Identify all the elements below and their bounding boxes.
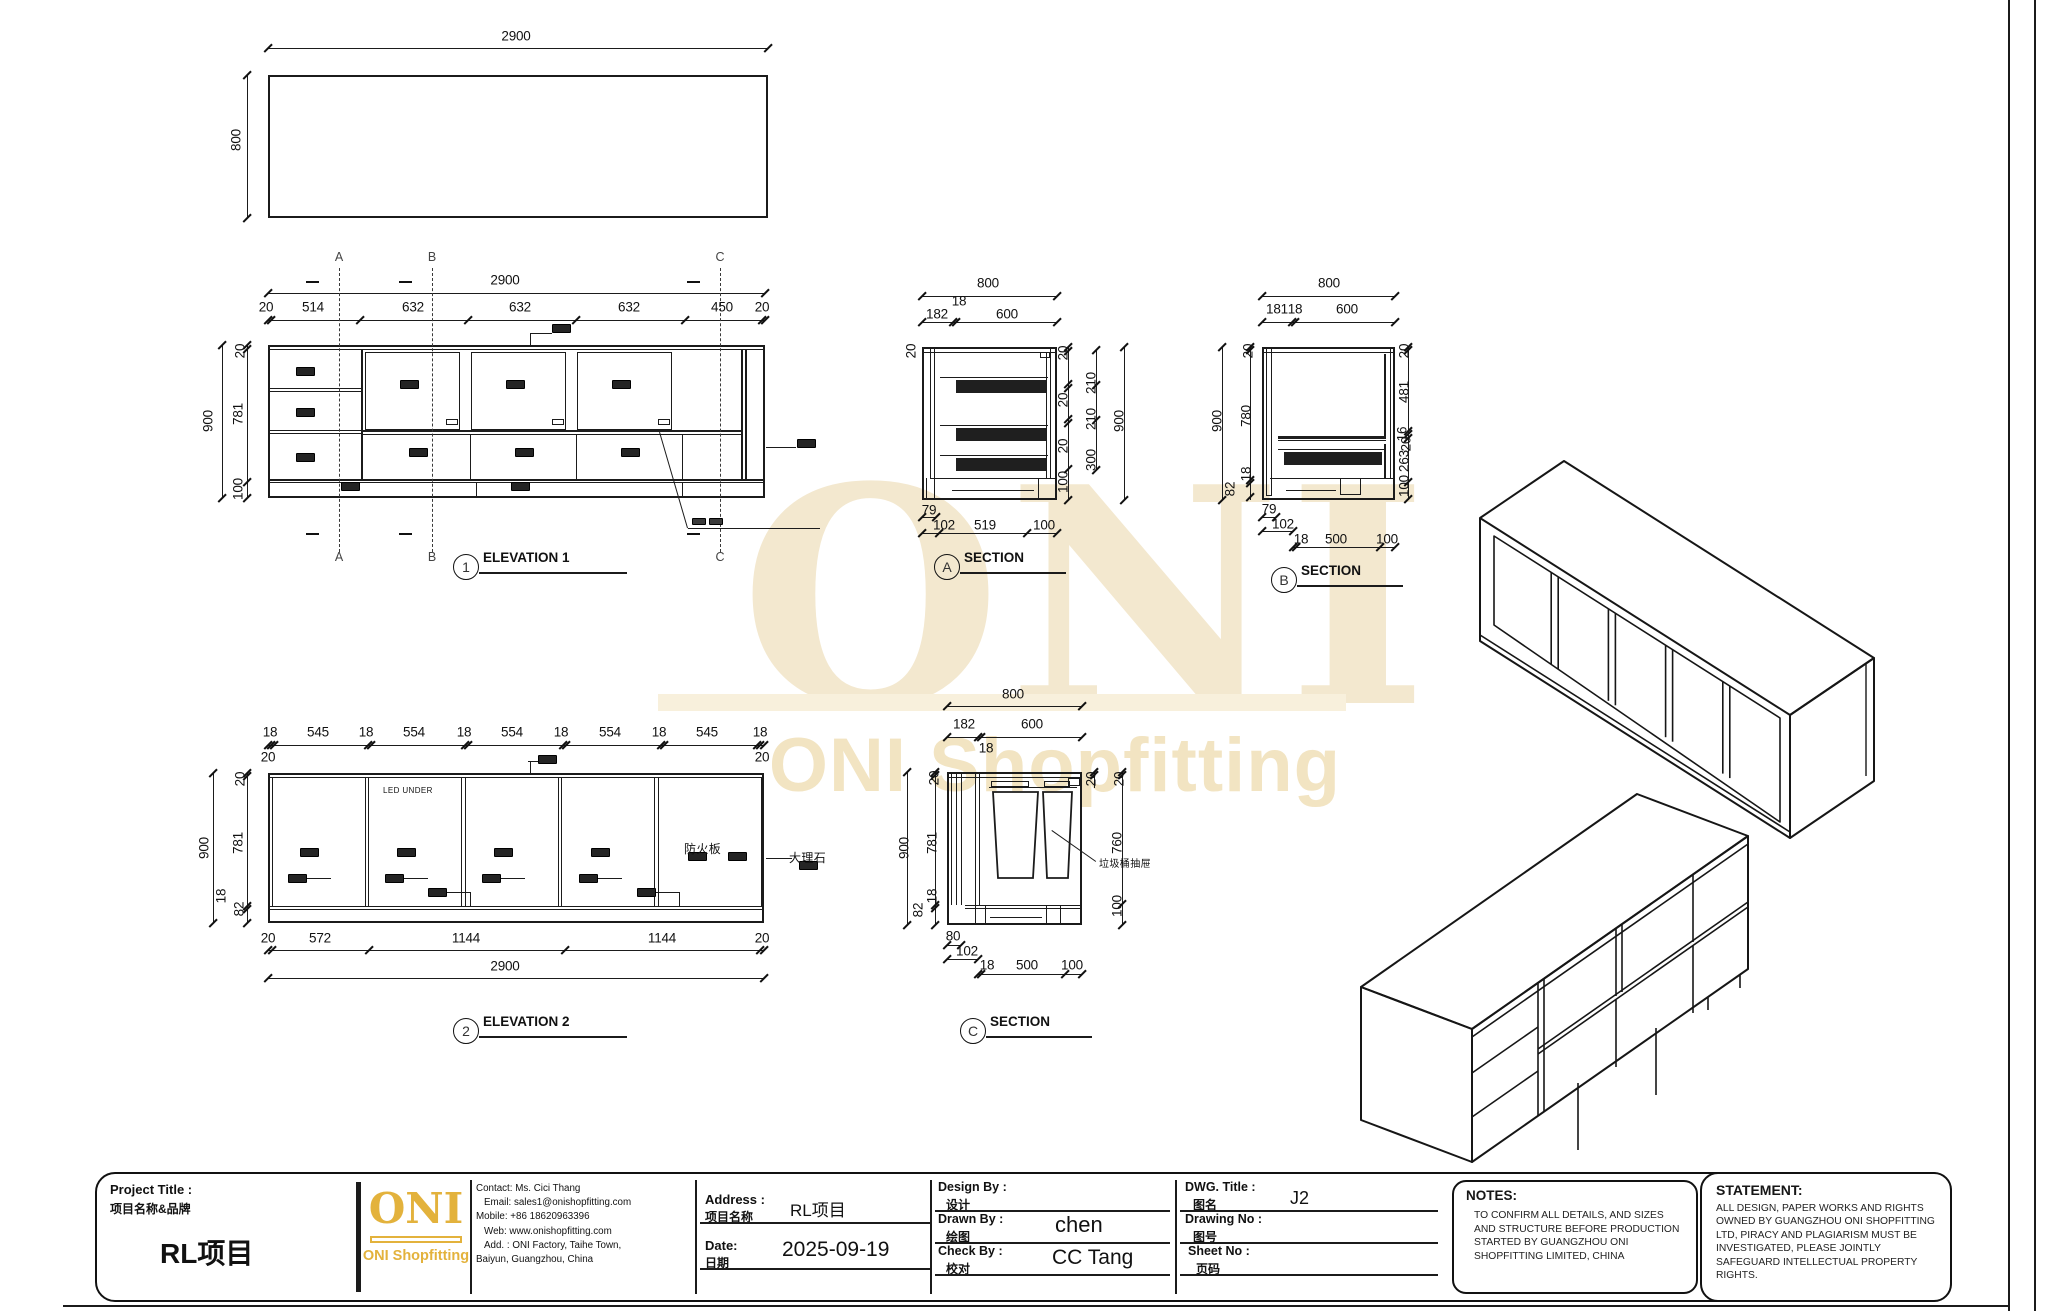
dim-label: 632: [618, 300, 640, 315]
drawing-line: [447, 892, 471, 893]
drawing-line: [1266, 347, 1267, 478]
sheet-border-right-outer: [2034, 0, 2036, 1311]
drawing-line: [922, 322, 1057, 323]
dim-tick: [1246, 493, 1255, 502]
drawing-line: [222, 345, 223, 498]
titleblock-divider-3: [930, 1180, 932, 1294]
drawing-line: [479, 1036, 627, 1038]
dim-label: 20: [259, 300, 274, 315]
dim-label: 632: [402, 300, 424, 315]
drawing-box: [268, 75, 768, 218]
dim-label: 20: [261, 750, 276, 765]
dim-label: 20: [904, 344, 919, 359]
dim-label: 18: [359, 725, 374, 740]
callout-title: SECTION: [990, 1014, 1050, 1029]
drawing-line: [307, 878, 331, 879]
dim-label: 600: [1021, 717, 1043, 732]
annotation-text: LED UNDER: [383, 786, 433, 795]
dim-label: 545: [307, 725, 329, 740]
dim-label: 800: [977, 276, 999, 291]
titleblock-thick-bar: [356, 1182, 361, 1292]
callout-title: SECTION: [964, 550, 1024, 565]
dim-label: 600: [996, 307, 1018, 322]
material-tag: [494, 848, 513, 857]
drawing-line: [940, 425, 1048, 426]
material-tag: [515, 448, 534, 457]
drawing-line: [952, 490, 1034, 491]
sheet-border-bottom: [63, 1305, 2010, 1307]
drawing-line: [598, 878, 622, 879]
dim-label: 900: [197, 837, 212, 859]
dim-label: 18: [652, 725, 667, 740]
dim-label: 900: [897, 837, 912, 859]
dim-label: 79: [922, 503, 937, 518]
section-cut-dash: [399, 281, 412, 283]
drawing-box: [658, 419, 670, 425]
drawing-line: [1262, 296, 1395, 297]
dim-label: 2900: [490, 273, 519, 288]
drawing-line: [268, 777, 764, 778]
dim-label: 20: [1397, 344, 1412, 359]
drawing-line: [1384, 354, 1386, 436]
drawing-line: [1340, 494, 1361, 495]
material-tag: [428, 888, 447, 897]
titleblock-divider-1: [470, 1180, 472, 1294]
drawing-line: [1271, 347, 1272, 478]
drawing-line: [479, 572, 627, 574]
dim-label: 632: [509, 300, 531, 315]
drawing-line: [1266, 478, 1267, 496]
drawing-line: [268, 391, 361, 392]
dim-label: 18: [925, 889, 940, 904]
dim-label: 18: [263, 725, 278, 740]
section-mark-letter: C: [715, 550, 724, 564]
drawing-line: [465, 777, 466, 906]
material-tag: [288, 874, 307, 883]
drawing-line: [1278, 449, 1386, 450]
material-tag: [506, 380, 525, 389]
dim-label: 2900: [490, 959, 519, 974]
drawing-line: [268, 433, 361, 434]
material-tag: [612, 380, 631, 389]
drawing-line: [268, 320, 765, 321]
dim-tick: [209, 919, 218, 928]
dim-tick: [243, 214, 252, 223]
dim-label: 554: [599, 725, 621, 740]
drawing-line: [272, 777, 273, 906]
dim-label: 18: [1294, 532, 1309, 547]
annotation-text: 大理石: [789, 849, 826, 866]
drawing-no-label: Drawing No :: [1185, 1212, 1262, 1226]
drawn-by-label: Drawn By :: [938, 1212, 1003, 1226]
drawing-line: [947, 959, 978, 960]
dim-tick: [903, 921, 912, 930]
drawing-line: [922, 296, 1057, 297]
material-tag: [538, 755, 557, 764]
drawing-line: [986, 1036, 1092, 1038]
dim-tick: [761, 316, 770, 325]
dim-label: 519: [974, 518, 996, 533]
dim-tick: [764, 44, 773, 53]
drawing-line: [934, 478, 935, 500]
drawing-line: [558, 777, 559, 906]
dim-label: 20: [1112, 772, 1127, 787]
drawing-line: [1050, 347, 1051, 478]
drawing-line: [561, 777, 562, 906]
dim-label: 18: [952, 294, 967, 309]
isometric-view-bottom-unit: [1338, 778, 1778, 1178]
dim-label: 20: [755, 750, 770, 765]
drawing-line: [1384, 444, 1386, 478]
dim-label: 82: [911, 903, 926, 918]
drawing-line: [476, 482, 477, 498]
date-label: Date:: [705, 1238, 738, 1253]
address-value: RL项目: [790, 1196, 846, 1221]
drawing-line: [960, 572, 1066, 574]
dim-label: 760: [1110, 832, 1125, 854]
notes-body: TO CONFIRM ALL DETAILS, AND SIZES AND ST…: [1454, 1203, 1696, 1263]
drawing-line: [741, 349, 743, 479]
drawing-line: [761, 777, 762, 906]
contact-line: Add. : ONI Factory, Taihe Town,: [476, 1239, 696, 1253]
dim-tick: [761, 289, 770, 298]
dim-label: 100: [1056, 471, 1071, 493]
dim-label: 800: [229, 129, 244, 151]
drawing-panel-fill: [1278, 436, 1386, 439]
drawing-line: [361, 349, 363, 479]
drawing-line: [1278, 440, 1386, 441]
sheet-no-underline: [1180, 1274, 1438, 1276]
drawing-line: [654, 777, 655, 906]
dim-label: 20: [1241, 344, 1256, 359]
dim-label: 18: [457, 725, 472, 740]
material-tag: [591, 848, 610, 857]
dim-label: 100: [1061, 958, 1083, 973]
dim-label: 514: [302, 300, 324, 315]
material-tag: [400, 380, 419, 389]
oni-logo: ONI: [366, 1184, 466, 1233]
drawing-line: [688, 528, 820, 529]
drawing-line: [365, 777, 366, 906]
dim-label: 781: [231, 403, 246, 425]
section-mark-letter: B: [428, 250, 436, 264]
dim-label: 900: [201, 410, 216, 432]
dim-label: 20: [1084, 772, 1099, 787]
dim-tick: [760, 974, 769, 983]
drawing-line: [682, 434, 683, 479]
dim-label: 481: [1397, 381, 1412, 403]
dim-label: 554: [403, 725, 425, 740]
material-tag: [296, 453, 315, 462]
dim-label: 572: [309, 931, 331, 946]
drawing-line: [922, 533, 1057, 534]
dim-label: 780: [1239, 405, 1254, 427]
drawing-line: [1270, 478, 1395, 479]
drawing-line: [268, 950, 764, 951]
section-mark-letter: A: [335, 550, 343, 564]
drawing-line: [530, 333, 531, 345]
dim-label: 181: [1266, 302, 1288, 317]
dim-label: 800: [1002, 687, 1024, 702]
dim-label: 1144: [452, 931, 480, 946]
oni-logo-bar: [370, 1236, 462, 1243]
dim-label: 79: [1262, 502, 1277, 517]
dim-label: 102: [1272, 517, 1294, 532]
dim-label: 781: [925, 832, 940, 854]
contact-line: Baiyun, Guangzhou, China: [476, 1253, 696, 1267]
callout-title: ELEVATION 1: [483, 550, 570, 565]
dim-label: 18: [753, 725, 768, 740]
material-tag: [728, 852, 747, 861]
dim-tick: [243, 919, 252, 928]
section-mark-letter: A: [335, 250, 343, 264]
dim-label: 102: [956, 944, 978, 959]
dim-label: 20: [233, 344, 248, 359]
dim-label: 18: [980, 958, 995, 973]
oni-logo-sub: ONI Shopfitting: [360, 1248, 472, 1264]
titleblock-divider-4: [1175, 1180, 1177, 1294]
dim-tick: [1064, 496, 1073, 505]
drawing-line: [1266, 495, 1272, 496]
drawing-line: [934, 347, 935, 478]
project-title-label-cn: 项目名称&品牌: [110, 1200, 191, 1217]
drawing-panel-fill: [956, 428, 1046, 441]
drawing-box: [552, 419, 564, 425]
drawing-line: [268, 978, 764, 979]
drawing-line: [1038, 498, 1057, 499]
check-by-label: Check By :: [938, 1244, 1003, 1258]
dim-label: 18: [554, 725, 569, 740]
address-underline: [700, 1222, 930, 1224]
section-cut-dash: [306, 281, 319, 283]
dim-label: 800: [1318, 276, 1340, 291]
callout-circle: 1: [453, 554, 479, 580]
drawing-line: [268, 388, 361, 389]
drawing-line: [501, 878, 525, 879]
callout-circle: 2: [453, 1018, 479, 1044]
drawing-line: [940, 377, 1048, 378]
drawing-line: [368, 777, 369, 906]
section-mark-letter: B: [428, 550, 436, 564]
drawing-line: [361, 434, 741, 435]
material-tag: [579, 874, 598, 883]
callout-title: ELEVATION 2: [483, 1014, 570, 1029]
dim-label: 182: [953, 717, 975, 732]
drawing-line: [1340, 478, 1341, 495]
contact-line: Contact: Ms. Cici Thang: [476, 1182, 696, 1196]
section-cut-line: [432, 268, 433, 552]
drawing-line: [658, 777, 659, 906]
section-mark-letter: C: [715, 250, 724, 264]
drawing-line: [530, 333, 552, 334]
drawing-line: [947, 706, 1082, 707]
drawing-line: [1360, 478, 1361, 495]
dim-label: 900: [1112, 410, 1127, 432]
drawing-line: [268, 479, 765, 481]
drawing-line: [461, 777, 462, 906]
drawing-panel-fill: [361, 430, 741, 432]
dim-tick: [1218, 496, 1227, 505]
material-tag: [397, 848, 416, 857]
dim-label: 210: [1084, 408, 1099, 430]
material-code-tag: [692, 518, 706, 525]
dim-label: 600: [1336, 302, 1358, 317]
drawing-line: [1297, 585, 1403, 587]
material-tag: [300, 848, 319, 857]
drawing-line: [926, 478, 927, 500]
dim-tick: [1053, 318, 1062, 327]
sheet-no-label: Sheet No :: [1188, 1244, 1250, 1258]
dim-label: 100: [231, 478, 246, 500]
section-cut-line: [339, 268, 340, 552]
check-underline: [935, 1274, 1170, 1276]
address-label: Address :: [705, 1192, 765, 1207]
drawing-line: [978, 974, 1082, 975]
project-title-value: RL项目: [160, 1232, 253, 1272]
drawing-line: [766, 447, 796, 448]
material-tag: [621, 448, 640, 457]
design-by-label: Design By :: [938, 1180, 1007, 1194]
notes-heading: NOTES:: [1454, 1182, 1696, 1203]
dim-label: 20: [1056, 439, 1071, 454]
drawn-by-value: chen: [1055, 1212, 1103, 1238]
dim-label: 781: [231, 832, 246, 854]
dim-label: 102: [933, 518, 955, 533]
drawing-line: [268, 48, 768, 49]
material-tag: [482, 874, 501, 883]
drawing-line: [268, 293, 765, 294]
drawing-line: [470, 892, 471, 906]
statement-box: STATEMENT: ALL DESIGN, PAPER WORKS AND R…: [1700, 1172, 1952, 1302]
material-code-tag: [709, 518, 723, 525]
dim-label: 20: [755, 300, 770, 315]
dim-tick: [1120, 496, 1129, 505]
section-cut-dash: [399, 533, 412, 535]
dim-label: 18: [214, 889, 229, 904]
drawing-line: [940, 455, 1048, 456]
dim-label: 1144: [648, 931, 676, 946]
material-tag: [296, 367, 315, 376]
dim-label: 100: [1376, 532, 1398, 547]
titleblock-divider-2: [695, 1180, 697, 1294]
date-underline: [700, 1268, 930, 1270]
drawing-line: [1390, 347, 1391, 478]
dim-label: 82: [1223, 482, 1238, 497]
trash-bins: [947, 770, 1087, 930]
contact-block: Contact: Ms. Cici Thang Email: sales1@on…: [476, 1182, 696, 1267]
dwg-title-label: DWG. Title :: [1185, 1180, 1256, 1194]
drawing-panel-fill: [1284, 452, 1382, 465]
annotation-text: 防火板: [684, 840, 721, 857]
date-value: 2025-09-19: [782, 1238, 889, 1262]
section-cut-dash: [687, 281, 700, 283]
drawing-line: [1286, 490, 1336, 491]
drawing-line: [656, 892, 680, 893]
dim-label: 554: [501, 725, 523, 740]
dim-tick: [1391, 292, 1400, 301]
dim-label: 900: [1210, 410, 1225, 432]
material-tag: [797, 439, 816, 448]
dim-tick: [1053, 292, 1062, 301]
drawing-line: [1271, 478, 1272, 496]
contact-line: Email: sales1@onishopfitting.com: [476, 1196, 696, 1210]
material-tag: [296, 408, 315, 417]
drawing-line: [1046, 352, 1047, 478]
drawing-box: [446, 419, 458, 425]
dim-label: 182: [926, 307, 948, 322]
dim-label: 2900: [501, 29, 530, 44]
drawing-line: [247, 345, 248, 498]
dim-label: 100: [1397, 475, 1412, 497]
dim-tick: [1118, 921, 1127, 930]
dim-label: 100: [1033, 518, 1055, 533]
dim-tick: [1078, 702, 1087, 711]
drawing-sheet: ONI ONI Shopfitting 29008002900205146326…: [0, 0, 2048, 1311]
drawing-line: [268, 909, 764, 910]
drawing-line: [404, 878, 428, 879]
drawing-line: [1262, 352, 1395, 353]
annotation-text: 垃圾桶抽屉: [1099, 855, 1151, 870]
material-tag: [385, 874, 404, 883]
dim-label: 18: [979, 741, 994, 756]
dim-tick: [1078, 733, 1087, 742]
drawing-line: [947, 737, 1082, 738]
material-tag: [637, 888, 656, 897]
dim-label: 20: [261, 931, 276, 946]
notes-box: NOTES: TO CONFIRM ALL DETAILS, AND SIZES…: [1452, 1180, 1698, 1294]
dim-label: 80: [946, 929, 961, 944]
material-tag: [552, 324, 571, 333]
statement-body: ALL DESIGN, PAPER WORKS AND RIGHTS OWNED…: [1702, 1198, 1950, 1282]
section-cut-dash: [687, 533, 700, 535]
drawing-line: [268, 349, 765, 350]
drawing-line: [922, 352, 1057, 353]
drawing-line: [930, 347, 931, 478]
drawing-line: [268, 906, 764, 907]
drawing-panel-fill: [956, 380, 1046, 393]
section-cut-dash: [306, 533, 319, 535]
drawing-line: [679, 892, 680, 906]
dim-label: 500: [1016, 958, 1038, 973]
callout-circle: A: [934, 554, 960, 580]
drawing-line: [1038, 478, 1039, 500]
dim-tick: [931, 921, 940, 930]
drawing-line: [268, 745, 764, 746]
material-tag: [341, 482, 360, 491]
drawing-line: [530, 761, 531, 773]
drawing-line: [247, 773, 248, 923]
check-by-value: CC Tang: [1052, 1246, 1133, 1270]
material-tag: [409, 448, 428, 457]
dim-label: 210: [1084, 372, 1099, 394]
contact-line: Web: www.onishopfitting.com: [476, 1225, 696, 1239]
drawing-line: [247, 75, 248, 218]
statement-heading: STATEMENT:: [1702, 1174, 1950, 1198]
drawing-panel-fill: [956, 458, 1046, 471]
dim-label: 545: [696, 725, 718, 740]
dim-label: 450: [711, 300, 733, 315]
drawing-line: [576, 434, 577, 479]
contact-line: Mobile: +86 18620963396: [476, 1210, 696, 1224]
callout-title: SECTION: [1301, 563, 1361, 578]
dim-label: 20: [1056, 393, 1071, 408]
drawing-line: [682, 482, 683, 498]
dim-label: 263: [1397, 450, 1412, 472]
material-tag: [511, 482, 530, 491]
callout-circle: B: [1271, 567, 1297, 593]
dim-label: 100: [1110, 895, 1125, 917]
drawing-line: [745, 349, 747, 479]
